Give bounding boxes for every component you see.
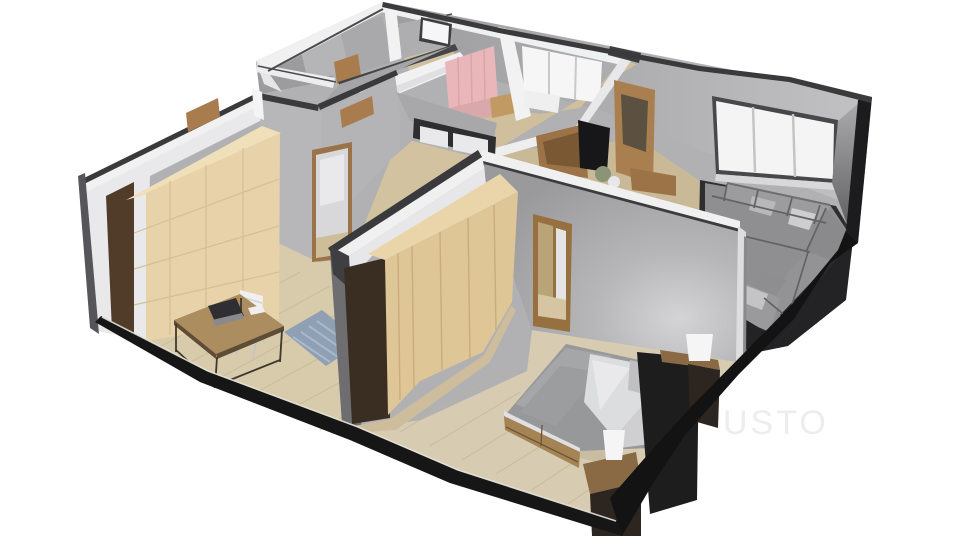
svg-text:USTO: USTO [723,404,829,442]
